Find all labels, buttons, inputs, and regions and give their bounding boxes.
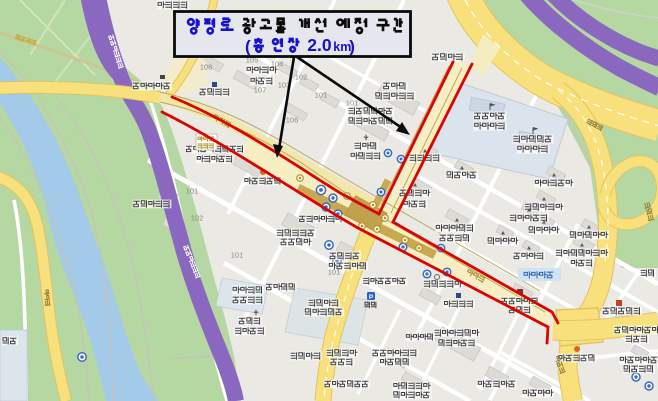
svg-text:107: 107 [254, 86, 267, 95]
svg-text:101: 101 [328, 268, 341, 277]
svg-text:101: 101 [315, 91, 328, 100]
svg-text:104: 104 [271, 60, 284, 69]
svg-text:101: 101 [186, 187, 199, 196]
svg-text:): ) [349, 37, 355, 56]
svg-text:102: 102 [191, 214, 204, 223]
svg-text:101: 101 [231, 251, 244, 260]
svg-text:(: ( [245, 37, 251, 56]
svg-text:P: P [369, 294, 374, 301]
svg-text:101: 101 [346, 99, 359, 108]
svg-text:108: 108 [200, 63, 213, 72]
svg-text:106: 106 [286, 116, 299, 125]
svg-text:102: 102 [295, 73, 308, 82]
svg-text:2.0: 2.0 [307, 35, 332, 55]
